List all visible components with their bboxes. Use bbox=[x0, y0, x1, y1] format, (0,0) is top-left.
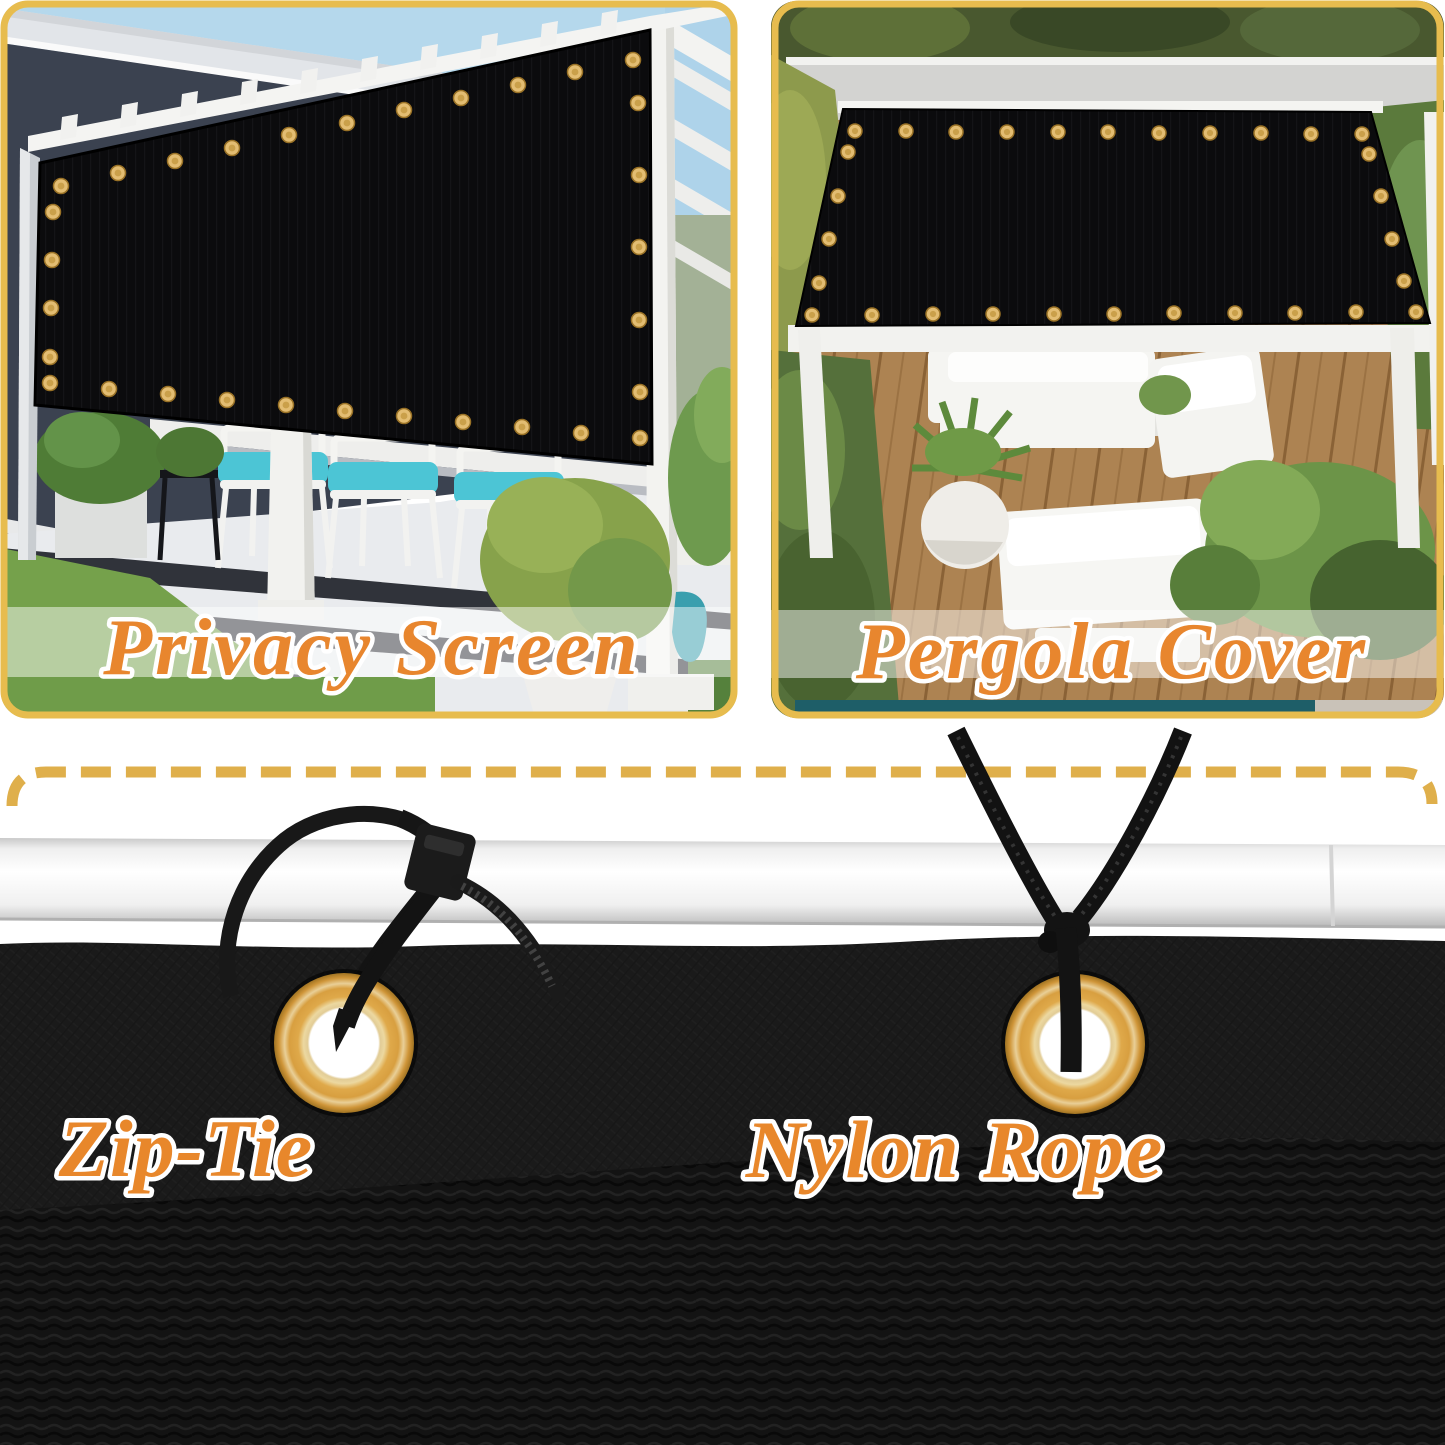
svg-text:Zip-Tie: Zip-Tie bbox=[58, 1103, 313, 1194]
svg-text:Pergola Cover: Pergola Cover bbox=[855, 608, 1368, 696]
svg-text:Nylon Rope: Nylon Rope bbox=[745, 1104, 1165, 1195]
svg-text:Privacy Screen: Privacy Screen bbox=[102, 604, 640, 692]
